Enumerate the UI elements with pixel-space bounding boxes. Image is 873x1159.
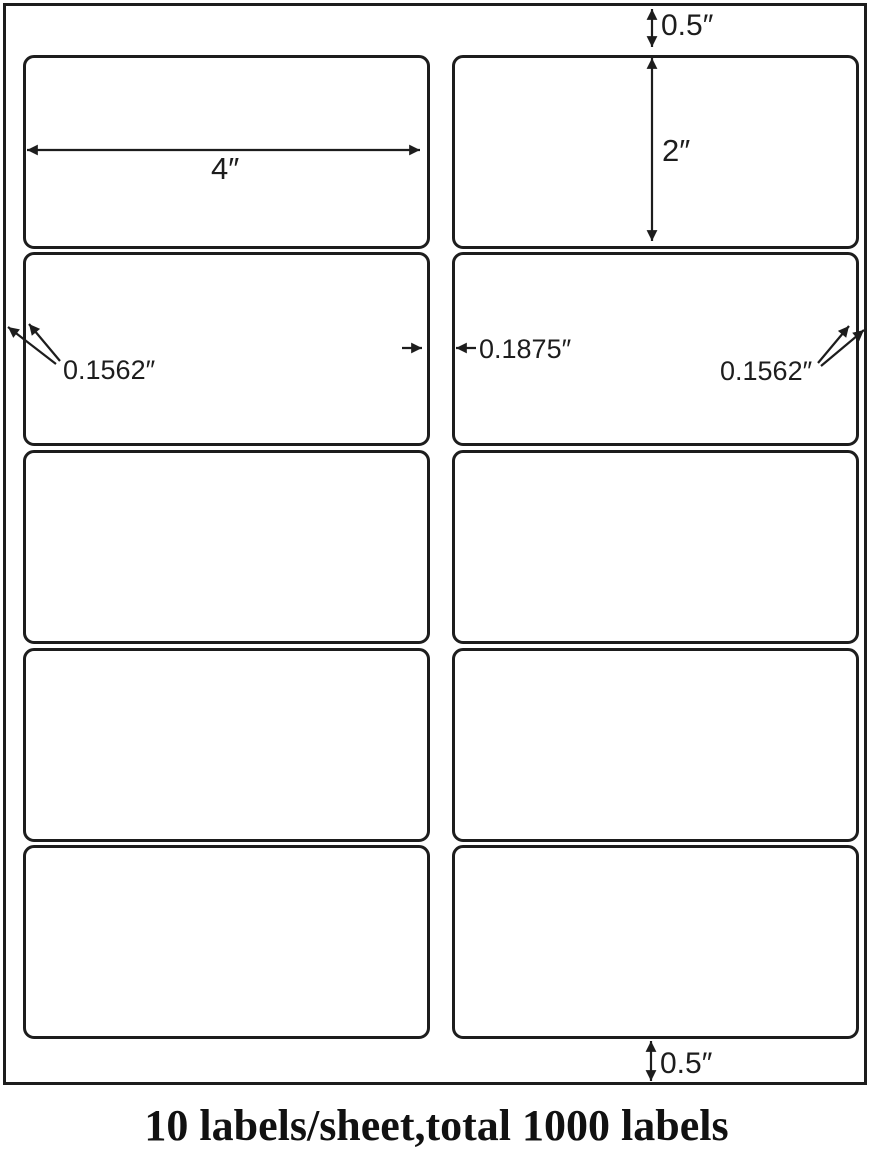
label-width-dimension: 4″	[211, 153, 239, 184]
caption: 10 labels/sheet,total 1000 labels	[0, 1104, 873, 1148]
right-margin-dimension: 0.1562″	[720, 358, 812, 385]
column-gap-dimension: 0.1875″	[479, 336, 571, 363]
label-cell	[23, 450, 430, 644]
label-cell	[23, 252, 430, 446]
label-cell	[452, 845, 859, 1039]
label-cell	[452, 450, 859, 644]
sheet-outline	[3, 3, 867, 1085]
left-margin-dimension: 0.1562″	[63, 357, 155, 384]
label-cell	[452, 648, 859, 842]
label-cell	[23, 845, 430, 1039]
label-cell	[452, 55, 859, 249]
label-sheet-diagram: 0.5″ 2″ 4″ 0.1562″ 0.1875″ 0.1562″ 0.5″ …	[0, 0, 873, 1159]
label-height-dimension: 2″	[662, 135, 690, 166]
label-cell	[23, 648, 430, 842]
bottom-margin-dimension: 0.5″	[660, 1049, 712, 1079]
top-margin-dimension: 0.5″	[661, 11, 713, 41]
